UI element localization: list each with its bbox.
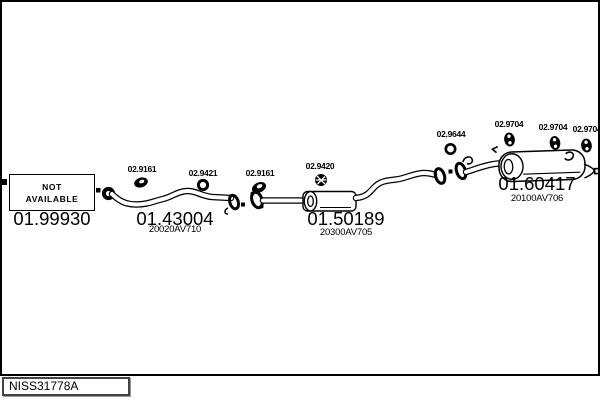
exhaust-gasket-front-icon[interactable]: [133, 176, 149, 189]
not-available-box: NOT AVAILABLE: [9, 174, 95, 211]
fitting-number-hanger-3[interactable]: 02.9704: [570, 125, 600, 134]
fitting-number-ring-rear[interactable]: 02.9644: [434, 130, 468, 139]
part-number-rear-silencer[interactable]: 01.60417: [492, 175, 582, 194]
fitting-number-hanger-1[interactable]: 02.9704: [492, 120, 526, 129]
mounting-ring-front-icon[interactable]: [198, 180, 207, 189]
exhaust-diagram-canvas: NOT AVAILABLE 01.99930 01.43004 01.50189…: [0, 0, 600, 400]
rubber-hanger-1-icon[interactable]: [503, 132, 515, 147]
centre-silencer-drawing[interactable]: [241, 173, 434, 211]
not-available-line1: NOT: [42, 182, 62, 192]
part-number-centre-silencer[interactable]: 01.50189: [302, 210, 390, 229]
not-available-line2: AVAILABLE: [26, 194, 79, 204]
fitting-number-seal-centre[interactable]: 02.9420: [303, 162, 337, 171]
oem-ref-front-pipe: 20020AV710: [131, 225, 219, 235]
oem-ref-centre-silencer: 20300AV705: [302, 228, 390, 238]
rubber-hanger-2-icon[interactable]: [549, 135, 561, 150]
fitting-number-gasket-centre[interactable]: 02.9161: [243, 169, 277, 178]
rubber-hanger-3-icon[interactable]: [580, 138, 592, 153]
frame-connector-square: [1, 179, 7, 185]
mounting-ring-rear-icon[interactable]: [446, 144, 455, 153]
drawing-code-plate: NISS31778A: [2, 377, 130, 396]
fitting-number-ring-front[interactable]: 02.9421: [186, 169, 220, 178]
part-number-flex-connector[interactable]: 01.99930: [6, 210, 98, 229]
fitting-number-hanger-2[interactable]: 02.9704: [536, 123, 570, 132]
seal-ring-centre-icon[interactable]: [315, 174, 327, 186]
oem-ref-rear-silencer: 20100AV706: [493, 194, 581, 204]
fitting-number-gasket-front[interactable]: 02.9161: [125, 165, 159, 174]
drawing-code: NISS31778A: [9, 379, 78, 393]
